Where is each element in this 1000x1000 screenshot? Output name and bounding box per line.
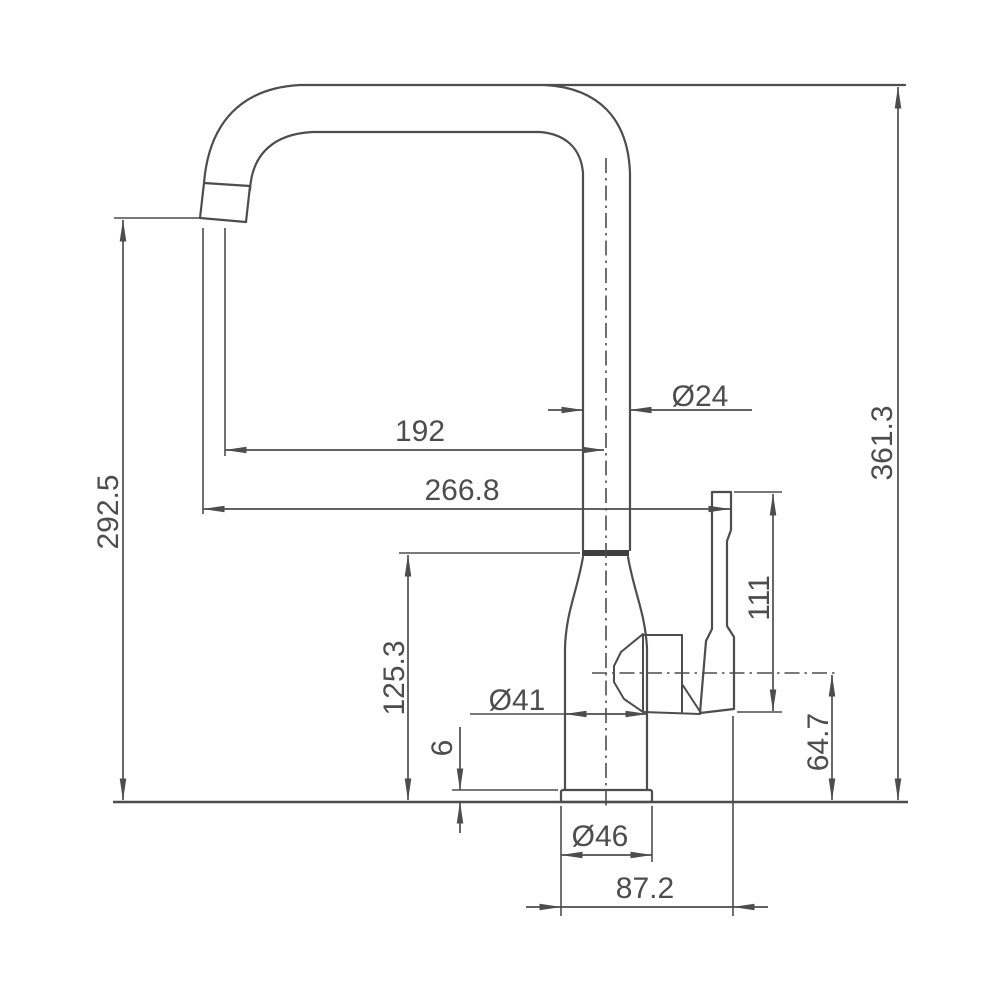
body-left-edge: [565, 557, 583, 789]
dim-label-base-span: 87.2: [616, 872, 674, 905]
dim-label-pipe-diameter: Ø24: [672, 380, 729, 413]
handle-collar: [643, 635, 701, 714]
dim-label-handle-length: 111: [743, 575, 776, 621]
dim-label-spout-reach: 192: [395, 415, 445, 448]
handle-lever: [700, 492, 734, 713]
dim-body-diameter: Ø41: [470, 684, 647, 717]
dim-pipe-diameter: Ø24: [548, 380, 752, 413]
technical-drawing-canvas: 292.5 361.3 192 266.8 Ø24 125.3 Ø41: [0, 0, 1000, 1000]
dim-spout-reach: 192: [225, 228, 604, 456]
dim-spout-height: 292.5: [92, 218, 203, 800]
dim-label-overall-reach: 266.8: [424, 474, 499, 507]
spout-outer-left-bend: [204, 85, 300, 183]
dim-overall-height: 361.3: [866, 87, 899, 800]
dim-label-spout-height: 292.5: [92, 474, 125, 549]
dim-plate-thickness: 6: [426, 727, 558, 833]
spout-inner-left-bend: [250, 132, 312, 190]
faucet-dimension-drawing: 292.5 361.3 192 266.8 Ø24 125.3 Ø41: [0, 0, 1000, 1000]
dim-label-handle-axis-height: 64.7: [802, 713, 835, 771]
dim-handle-axis-height: 64.7: [802, 675, 835, 800]
dim-label-body-diameter: Ø41: [489, 684, 546, 717]
dim-label-body-height: 125.3: [378, 640, 411, 715]
dim-handle-length: 111: [734, 492, 782, 712]
dim-label-base-diameter: Ø46: [572, 820, 629, 853]
spout-right-bend-outer: [545, 85, 630, 550]
dim-body-height: 125.3: [378, 553, 580, 800]
dim-overall-reach: 266.8: [203, 228, 730, 514]
spout-right-bend-inner: [540, 132, 583, 550]
dim-label-overall-height: 361.3: [866, 405, 899, 480]
dim-label-plate-thickness: 6: [426, 740, 459, 757]
nozzle-aerator: [200, 183, 250, 222]
